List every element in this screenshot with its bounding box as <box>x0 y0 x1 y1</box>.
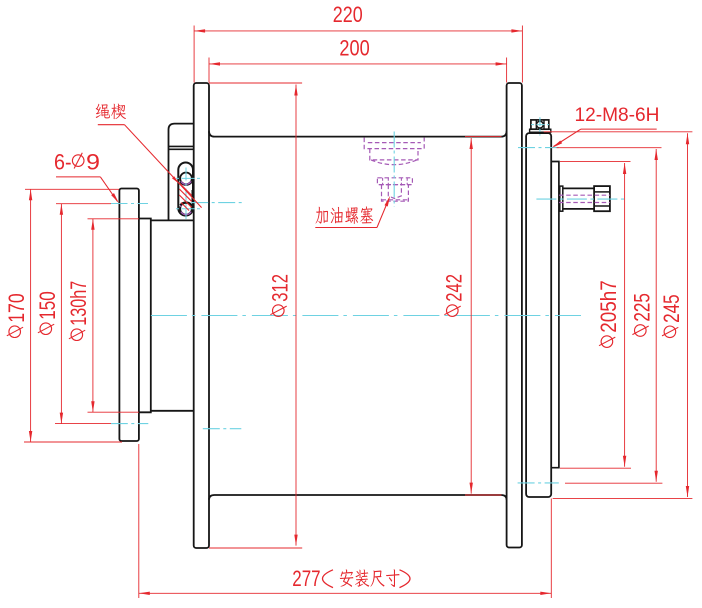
svg-text:277: 277 <box>292 566 320 591</box>
svg-text:150: 150 <box>35 291 60 320</box>
svg-text:220: 220 <box>333 2 363 27</box>
svg-text:130h7: 130h7 <box>66 281 91 326</box>
svg-text:312: 312 <box>268 274 293 302</box>
svg-text:205h7: 205h7 <box>596 280 621 333</box>
svg-text:242: 242 <box>442 274 467 302</box>
svg-text:200: 200 <box>339 35 369 60</box>
svg-text:170: 170 <box>4 293 29 323</box>
svg-text:6-: 6- <box>54 149 72 174</box>
svg-text:9: 9 <box>86 149 100 174</box>
svg-text:12-M8-6H: 12-M8-6H <box>575 104 660 126</box>
svg-text:245: 245 <box>659 294 684 323</box>
svg-text:225: 225 <box>630 293 655 322</box>
